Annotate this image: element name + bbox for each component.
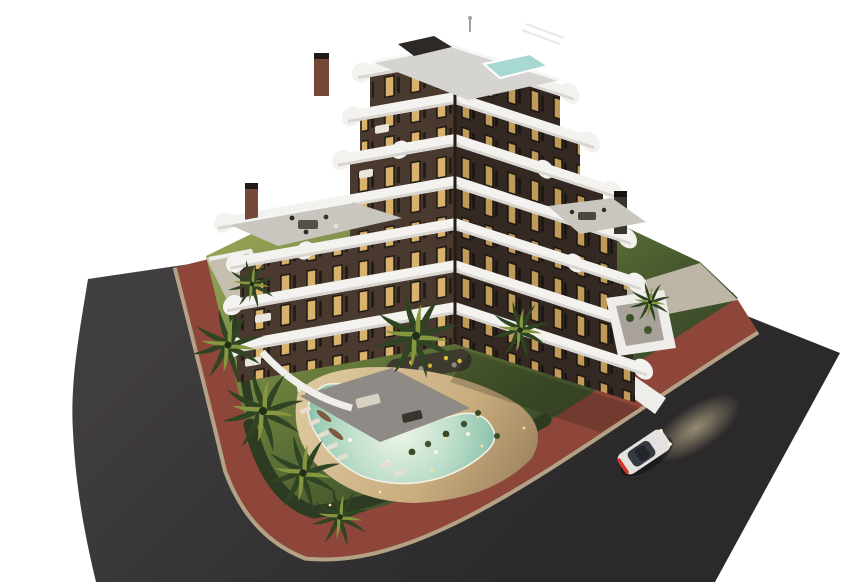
- terrace-table: [298, 220, 318, 229]
- render-canvas: [0, 0, 851, 582]
- scene-root: [0, 0, 851, 582]
